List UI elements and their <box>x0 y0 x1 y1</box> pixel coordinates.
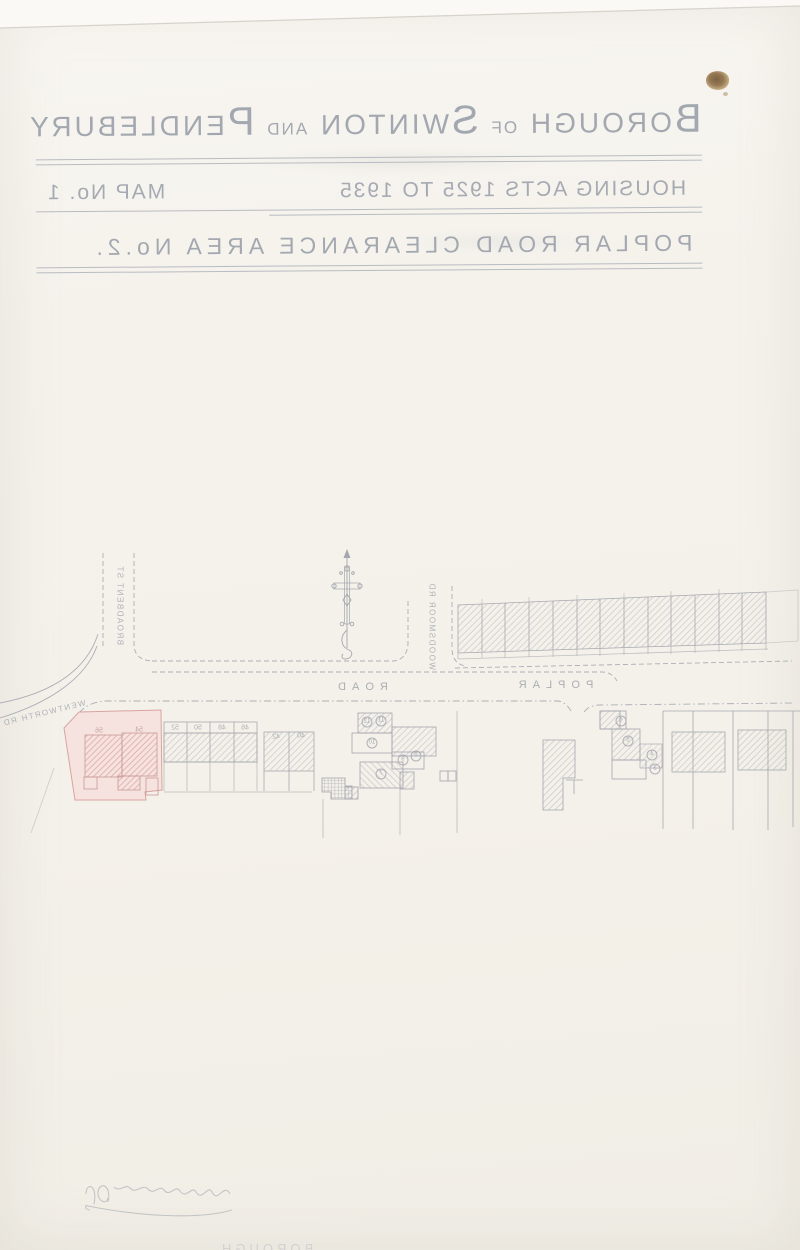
terrace-block-north <box>458 589 798 659</box>
house-number: 54 <box>135 727 143 734</box>
stepped-outbuilding <box>322 778 358 799</box>
plot-number: 11 <box>376 716 387 727</box>
title-of: OF <box>489 118 517 137</box>
clearance-area-pink <box>64 710 162 800</box>
title-word: ENDLEBURY <box>27 110 225 142</box>
handwritten-signature <box>78 1180 238 1230</box>
title-initial: S <box>449 98 479 142</box>
title-and: AND <box>265 119 307 138</box>
condemned-building <box>85 735 122 777</box>
street-label-broadbent: BROADBENT ST <box>116 565 125 645</box>
housing-acts-label: HOUSING ACTS 1925 TO 1935 <box>338 176 686 204</box>
plot-number: 4 <box>647 750 658 761</box>
l-shaped-building <box>543 740 583 810</box>
map-number-label: MAP No. 1 <box>46 179 165 206</box>
plot-number: 10 <box>367 738 378 749</box>
title-underline-3 <box>37 263 703 274</box>
pair-42-40 <box>264 732 314 791</box>
plot-number: 7 <box>376 769 387 780</box>
twin-villa-plots <box>663 711 800 830</box>
house-number: 50 <box>194 725 202 732</box>
house-number: 46 <box>241 725 249 732</box>
house-number: 42 <box>272 734 280 741</box>
street-label-road: ROAD <box>332 681 388 693</box>
title-initial: P <box>225 100 255 144</box>
title-line-1: BOROUGH OF SWINTON AND PENDLEBURY <box>35 96 701 155</box>
house-number: 56 <box>95 728 103 735</box>
ink-speck <box>723 92 728 96</box>
street-label-poplar: POPLAR <box>513 679 594 691</box>
plot-number: 3 <box>650 764 661 775</box>
title-word: OROUGH <box>528 107 672 139</box>
title-word: WINTON <box>318 108 449 140</box>
title-line-2: HOUSING ACTS 1925 TO 1935 MAP No. 1 <box>36 176 702 207</box>
title-underline-2 <box>36 207 702 218</box>
title-block: BOROUGH OF SWINTON AND PENDLEBURY HOUSIN… <box>35 96 702 278</box>
scanned-map-page: BOROUGH OF SWINTON AND PENDLEBURY HOUSIN… <box>0 0 800 1250</box>
paper-top-edge <box>0 0 800 40</box>
condemned-building <box>122 733 157 776</box>
ink-stain <box>704 69 730 92</box>
plot-number: 12 <box>362 717 373 728</box>
north-arrow-head <box>344 549 351 558</box>
plot-number: 6 <box>616 716 627 727</box>
house-number: 48 <box>218 725 226 732</box>
street-label-woodsmoor: WOODSMOOR RD <box>428 582 437 670</box>
title-underline-1 <box>36 155 702 166</box>
title-line-3: POPLAR ROAD CLEARANCE AREA No.2. <box>36 228 702 263</box>
paper-edge-highlight <box>0 0 800 28</box>
outbuilding <box>118 776 140 790</box>
plot-number: 9 <box>398 755 409 766</box>
north-arrow <box>332 549 362 659</box>
house-number: 52 <box>171 725 179 732</box>
plot-number: 8 <box>411 751 422 762</box>
plot-number: 5 <box>623 736 634 747</box>
bottom-partial-text: BOROUGH <box>218 1241 313 1250</box>
title-initial: B <box>672 97 702 141</box>
house-number: 40 <box>297 733 305 740</box>
